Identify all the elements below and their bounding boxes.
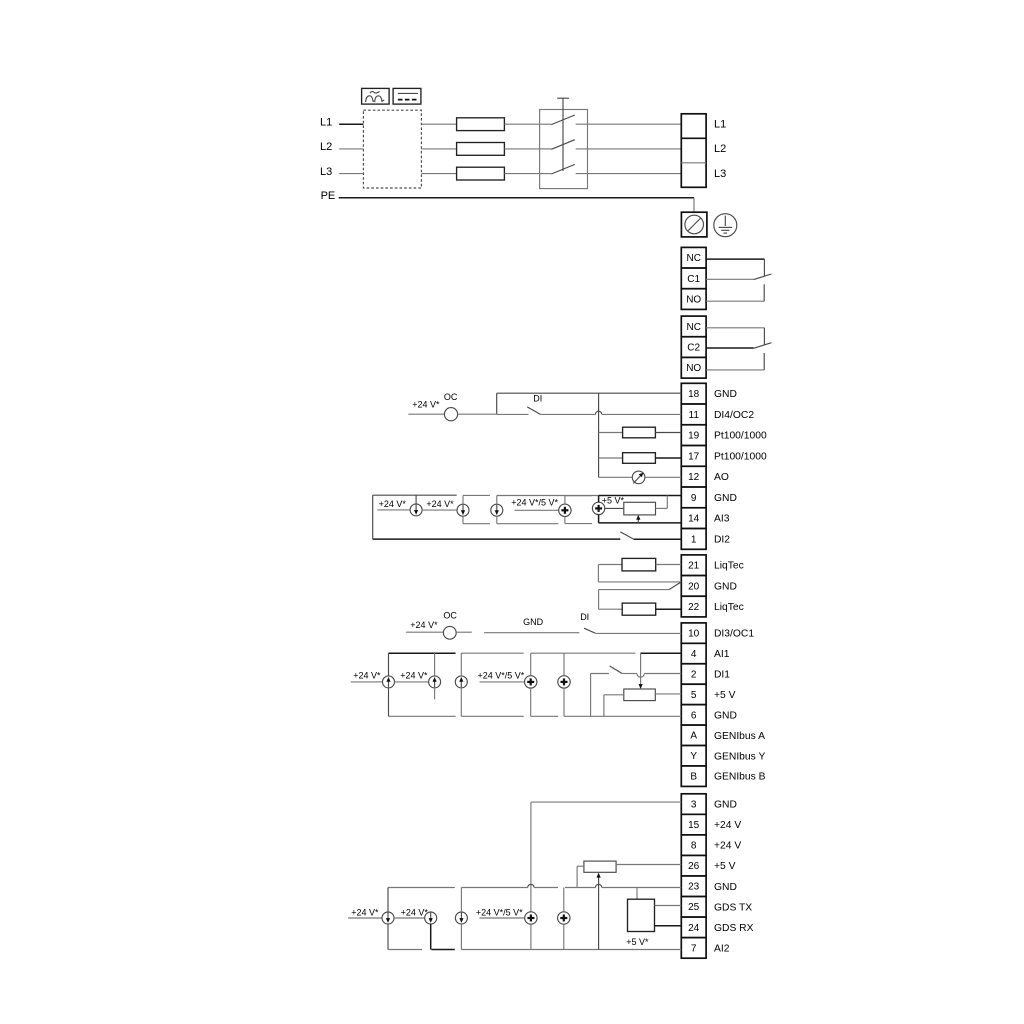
svg-text:L1: L1 [714, 118, 726, 130]
svg-text:Pt100/1000: Pt100/1000 [714, 431, 767, 442]
svg-text:+24 V*: +24 V* [353, 670, 381, 680]
svg-text:+5 V: +5 V [714, 690, 736, 701]
svg-text:+24 V*: +24 V* [351, 907, 379, 917]
svg-text:7: 7 [691, 943, 697, 954]
svg-text:+5 V*: +5 V* [602, 496, 625, 506]
svg-text:GENIbus B: GENIbus B [714, 772, 766, 783]
svg-text:AI3: AI3 [714, 514, 730, 525]
svg-text:8: 8 [691, 841, 697, 852]
svg-text:C2: C2 [687, 343, 700, 354]
svg-text:+24 V*: +24 V* [379, 499, 407, 509]
svg-text:B: B [690, 772, 697, 783]
svg-text:PE: PE [321, 190, 336, 202]
svg-text:Pt100/1000: Pt100/1000 [714, 451, 767, 462]
svg-text:AI2: AI2 [714, 943, 730, 954]
svg-text:2: 2 [691, 669, 697, 680]
svg-text:+24 V*: +24 V* [400, 670, 428, 680]
svg-text:+24 V*: +24 V* [426, 499, 454, 509]
svg-text:GND: GND [714, 493, 737, 504]
svg-text:GND: GND [714, 882, 737, 893]
svg-text:1: 1 [691, 534, 697, 545]
svg-text:NO: NO [686, 363, 701, 374]
svg-text:DI2: DI2 [714, 534, 730, 545]
svg-text:+5 V*: +5 V* [626, 937, 649, 947]
svg-text:14: 14 [688, 514, 700, 525]
svg-text:21: 21 [688, 561, 700, 572]
svg-text:AO: AO [714, 472, 729, 483]
svg-text:AI1: AI1 [714, 649, 730, 660]
svg-text:+24 V*: +24 V* [412, 400, 440, 410]
svg-text:L1: L1 [320, 116, 332, 128]
svg-text:DI3/OC1: DI3/OC1 [714, 629, 754, 640]
svg-text:11: 11 [689, 410, 700, 421]
svg-text:GND: GND [714, 581, 737, 592]
svg-text:L3: L3 [714, 168, 726, 180]
svg-text:GENIbus A: GENIbus A [714, 731, 765, 742]
svg-text:26: 26 [688, 861, 700, 872]
svg-text:L2: L2 [714, 143, 726, 155]
svg-text:OC: OC [443, 611, 457, 621]
svg-text:GND: GND [714, 800, 737, 811]
svg-text:+24 V*: +24 V* [410, 620, 438, 630]
svg-text:LiqTec: LiqTec [714, 602, 744, 613]
svg-text:19: 19 [688, 431, 700, 442]
svg-text:4: 4 [691, 649, 697, 660]
svg-text:NO: NO [686, 294, 701, 305]
svg-text:22: 22 [688, 602, 700, 613]
svg-text:+24 V*: +24 V* [401, 907, 429, 917]
svg-text:+24 V*/5 V*: +24 V*/5 V* [511, 498, 558, 508]
svg-text:3: 3 [691, 799, 697, 810]
svg-text:12: 12 [688, 472, 700, 483]
svg-text:GDS RX: GDS RX [714, 923, 754, 934]
svg-text:GENIbus Y: GENIbus Y [714, 751, 765, 762]
svg-text:Y: Y [690, 751, 697, 762]
svg-text:GND: GND [523, 617, 544, 627]
svg-text:LiqTec: LiqTec [714, 561, 744, 572]
svg-text:GDS TX: GDS TX [714, 902, 752, 913]
svg-text:6: 6 [691, 710, 697, 721]
svg-text:L2: L2 [320, 141, 332, 153]
svg-text:17: 17 [688, 451, 700, 462]
svg-text:+24 V*/5 V*: +24 V*/5 V* [478, 670, 525, 680]
svg-text:+24 V*/5 V*: +24 V*/5 V* [476, 907, 523, 917]
svg-text:DI: DI [533, 393, 542, 403]
svg-text:DI4/OC2: DI4/OC2 [714, 410, 754, 421]
svg-text:5: 5 [691, 690, 697, 701]
svg-text:A: A [690, 731, 697, 742]
svg-text:NC: NC [686, 253, 700, 264]
svg-text:18: 18 [688, 389, 700, 400]
svg-text:GND: GND [714, 389, 737, 400]
svg-text:10: 10 [688, 629, 700, 640]
svg-text:+24 V: +24 V [714, 820, 741, 831]
svg-text:L3: L3 [320, 166, 332, 178]
svg-text:GND: GND [714, 710, 737, 721]
svg-text:20: 20 [688, 581, 700, 592]
svg-text:DI: DI [580, 612, 589, 622]
svg-text:+5 V: +5 V [714, 861, 736, 872]
svg-text:+24 V: +24 V [714, 841, 741, 852]
svg-text:DI1: DI1 [714, 670, 730, 681]
svg-text:24: 24 [688, 923, 700, 934]
svg-text:15: 15 [688, 820, 700, 831]
svg-text:C1: C1 [687, 274, 700, 285]
svg-text:25: 25 [688, 902, 700, 913]
svg-text:9: 9 [691, 493, 697, 504]
svg-text:23: 23 [688, 882, 700, 893]
svg-text:NC: NC [686, 322, 700, 333]
svg-text:OC: OC [444, 392, 458, 402]
